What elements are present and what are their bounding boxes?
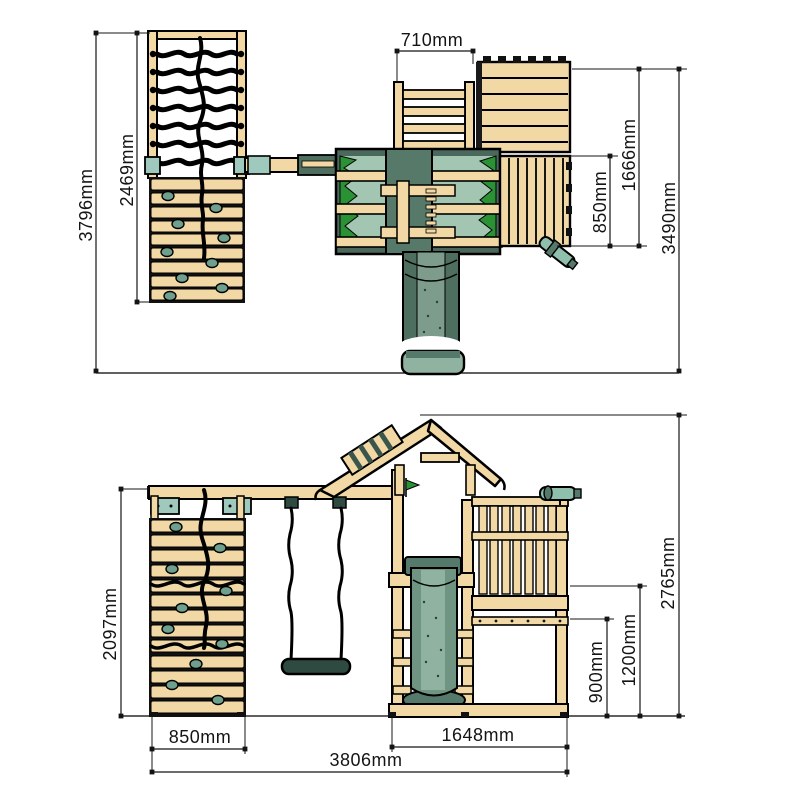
dim-label-3796: 3796mm	[76, 168, 96, 241]
dim-label-1648: 1648mm	[441, 725, 514, 745]
base-beam	[389, 704, 568, 717]
dim-label-2097: 2097mm	[100, 587, 120, 660]
dimension-diagram-page: 710mm 3796mm 2469mm 1666mm 850mm 3490mm	[0, 0, 792, 792]
net-bracket-left	[145, 157, 160, 174]
tower-post-left	[392, 470, 403, 717]
dim-label-3806: 3806mm	[329, 750, 402, 770]
dim-label-1666: 1666mm	[619, 118, 639, 191]
climbing-wall-front	[149, 490, 246, 717]
diagram-canvas: 710mm 3796mm 2469mm 1666mm 850mm 3490mm	[0, 0, 792, 792]
dim-label-850-top: 850mm	[590, 171, 610, 234]
dim-label-3490: 3490mm	[659, 181, 679, 254]
climbing-net-top	[145, 31, 249, 178]
dim-label-2765: 2765mm	[658, 536, 678, 609]
gable-wall-top	[476, 56, 570, 152]
swing-hanger-right	[333, 497, 346, 508]
swing-chain-right	[339, 508, 343, 660]
front-view: 2097mm 850mm 3806mm 1648mm 900mm 1200mm …	[100, 415, 687, 777]
swing-beam-front	[147, 486, 395, 514]
slide-tube-top	[398, 252, 464, 374]
slide-front	[403, 557, 465, 710]
monkey-bars-top	[394, 82, 474, 150]
climbing-wall-top	[149, 177, 245, 303]
roof-collar-beam	[421, 453, 459, 462]
dim-label-1200: 1200mm	[619, 613, 639, 686]
swing-beam-top	[245, 155, 340, 175]
swing-seat	[282, 659, 350, 674]
roof	[316, 420, 505, 500]
dim-label-900: 900mm	[586, 641, 606, 704]
dim-label-710: 710mm	[401, 30, 464, 50]
swing-hanger-left	[285, 497, 298, 508]
top-view: 710mm 3796mm 2469mm 1666mm 850mm 3490mm	[76, 30, 687, 374]
fence-top	[500, 156, 580, 272]
dim-label-2469: 2469mm	[117, 133, 137, 206]
flag	[406, 478, 419, 497]
tower-front	[388, 470, 581, 717]
swing	[282, 508, 350, 674]
fence-front	[472, 497, 568, 625]
dim-label-850-front: 850mm	[169, 727, 232, 747]
swing-chain-left	[289, 508, 293, 660]
tower-top	[336, 149, 502, 254]
